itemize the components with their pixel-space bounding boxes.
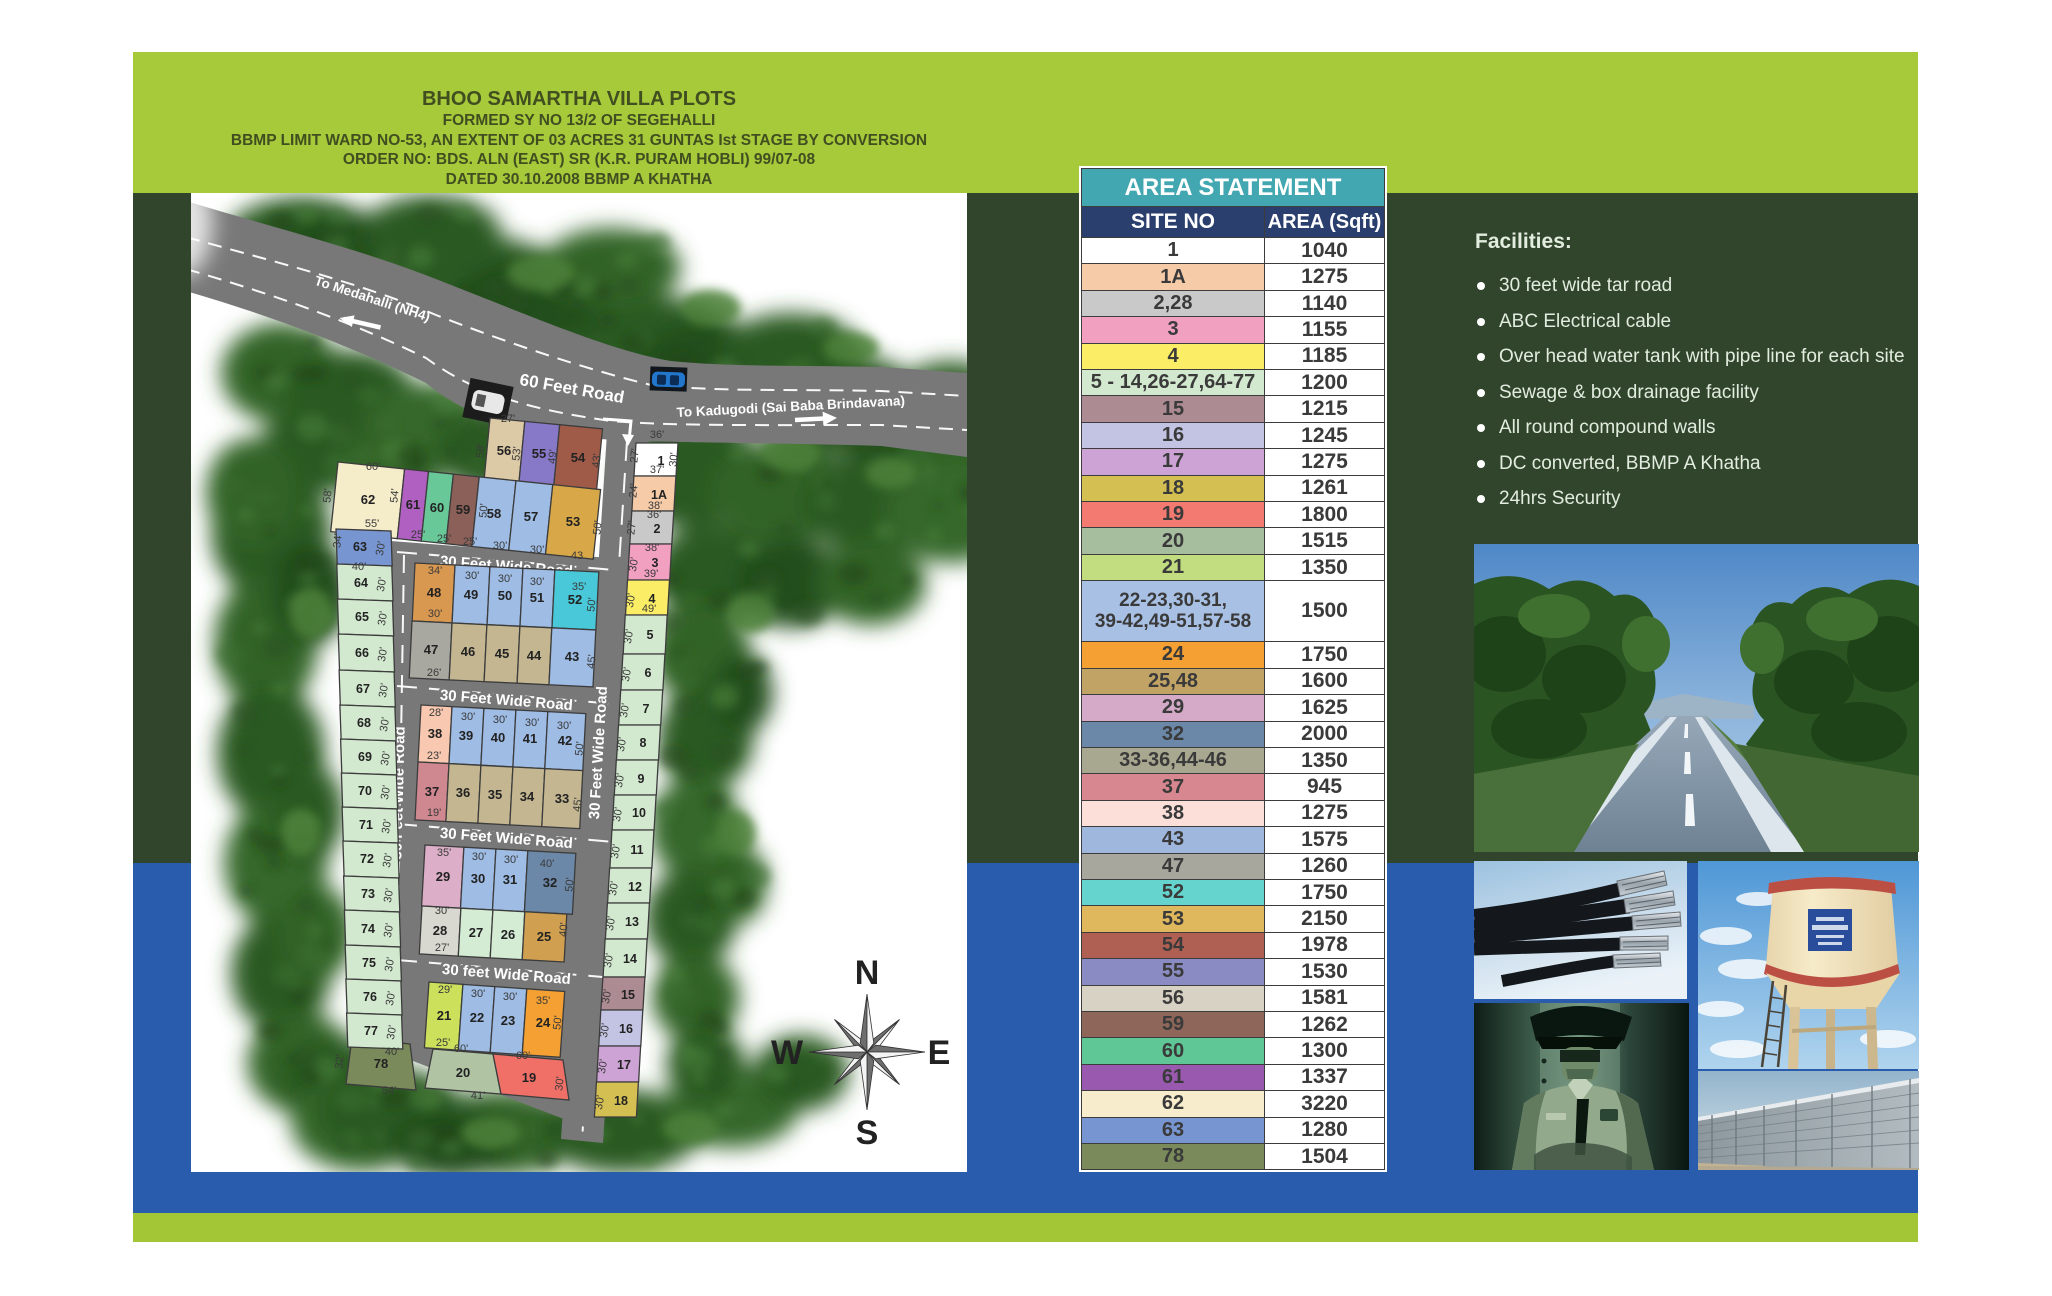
svg-text:30': 30'	[607, 880, 621, 896]
svg-text:60': 60'	[454, 1043, 468, 1055]
svg-text:8: 8	[640, 736, 647, 750]
svg-text:43: 43	[565, 649, 579, 664]
svg-text:50': 50'	[585, 597, 598, 613]
svg-text:59: 59	[456, 502, 470, 517]
svg-text:47: 47	[424, 642, 438, 657]
svg-text:30': 30'	[498, 573, 512, 585]
svg-text:35: 35	[488, 787, 502, 802]
svg-text:56: 56	[497, 443, 511, 458]
svg-text:30': 30'	[602, 952, 616, 968]
svg-text:25: 25	[537, 929, 551, 944]
svg-text:37': 37'	[650, 464, 664, 476]
svg-text:24: 24	[536, 1015, 551, 1030]
svg-text:40: 40	[491, 730, 505, 745]
svg-text:69: 69	[358, 750, 372, 764]
svg-text:30': 30'	[461, 711, 475, 723]
svg-text:30': 30'	[378, 716, 392, 732]
svg-text:25': 25'	[411, 529, 425, 541]
svg-text:41': 41'	[471, 1090, 485, 1102]
svg-text:30': 30'	[503, 991, 517, 1003]
svg-text:30': 30'	[553, 1076, 566, 1092]
svg-text:31: 31	[503, 872, 517, 887]
svg-text:30': 30'	[380, 818, 394, 834]
svg-text:70: 70	[358, 784, 372, 798]
svg-text:30': 30'	[374, 540, 388, 556]
svg-text:49': 49'	[642, 603, 656, 615]
svg-text:35': 35'	[572, 581, 586, 593]
svg-text:30': 30'	[382, 922, 396, 938]
svg-text:30': 30'	[611, 806, 625, 822]
svg-text:30': 30'	[472, 851, 486, 863]
svg-text:27': 27'	[625, 520, 638, 536]
svg-text:52: 52	[568, 592, 582, 607]
svg-text:30': 30'	[471, 988, 485, 1000]
svg-text:30': 30'	[493, 714, 507, 726]
svg-text:24': 24'	[627, 483, 640, 499]
svg-text:32': 32'	[333, 1054, 346, 1070]
svg-text:66: 66	[355, 646, 369, 660]
svg-text:27': 27'	[628, 448, 641, 464]
svg-text:30': 30'	[598, 1022, 612, 1038]
svg-text:34': 34'	[331, 533, 344, 549]
svg-text:17: 17	[617, 1058, 631, 1072]
svg-text:S: S	[856, 1114, 879, 1152]
svg-text:35': 35'	[437, 847, 451, 859]
svg-text:36': 36'	[647, 509, 661, 521]
svg-text:30': 30'	[379, 784, 393, 800]
svg-text:54': 54'	[388, 488, 401, 504]
svg-text:30': 30'	[667, 452, 680, 468]
svg-text:41: 41	[523, 731, 537, 746]
svg-text:65: 65	[355, 610, 369, 624]
svg-text:33: 33	[555, 791, 569, 806]
svg-text:7: 7	[643, 702, 650, 716]
svg-text:28: 28	[433, 923, 447, 938]
svg-text:53': 53'	[510, 446, 523, 462]
svg-text:30': 30'	[620, 666, 634, 682]
svg-text:62: 62	[361, 492, 375, 507]
svg-text:76: 76	[363, 990, 377, 1004]
svg-text:54: 54	[571, 450, 586, 465]
svg-text:30': 30'	[615, 736, 629, 752]
svg-text:10: 10	[632, 806, 646, 820]
svg-text:39': 39'	[644, 568, 658, 580]
svg-text:36': 36'	[650, 429, 664, 441]
svg-text:77: 77	[364, 1024, 378, 1038]
svg-text:30': 30'	[379, 750, 393, 766]
svg-text:46: 46	[461, 644, 475, 659]
svg-text:44: 44	[527, 648, 542, 663]
svg-text:30': 30'	[377, 682, 391, 698]
svg-text:25': 25'	[436, 1037, 450, 1049]
svg-text:16: 16	[619, 1022, 633, 1036]
svg-text:30': 30'	[428, 608, 442, 620]
svg-text:67: 67	[356, 682, 370, 696]
svg-text:32: 32	[543, 875, 557, 890]
svg-text:11: 11	[630, 843, 643, 857]
svg-text:30': 30'	[376, 646, 390, 662]
svg-text:61: 61	[406, 497, 420, 512]
svg-text:43: 43	[571, 550, 583, 562]
svg-text:30': 30'	[557, 720, 571, 732]
svg-text:25': 25'	[437, 533, 451, 545]
svg-text:30': 30'	[375, 576, 389, 592]
svg-text:57: 57	[524, 509, 538, 524]
svg-text:68: 68	[357, 716, 371, 730]
svg-text:30': 30'	[618, 702, 632, 718]
svg-text:40': 40'	[385, 1046, 399, 1058]
svg-text:42: 42	[558, 733, 572, 748]
svg-text:50': 50'	[591, 520, 604, 536]
svg-text:23: 23	[501, 1013, 515, 1028]
svg-text:78: 78	[374, 1056, 388, 1071]
svg-text:30': 30'	[593, 1094, 607, 1110]
svg-text:19': 19'	[427, 807, 441, 819]
svg-text:45': 45'	[585, 654, 598, 670]
svg-text:26: 26	[501, 927, 515, 942]
svg-text:26': 26'	[427, 667, 441, 679]
svg-text:14: 14	[623, 952, 637, 966]
svg-text:28': 28'	[429, 707, 443, 719]
svg-text:50': 50'	[551, 1015, 564, 1031]
svg-text:72: 72	[360, 852, 374, 866]
svg-text:40': 40'	[557, 922, 570, 938]
svg-text:74: 74	[361, 922, 375, 936]
svg-text:30': 30'	[596, 1058, 610, 1074]
svg-text:36: 36	[456, 785, 470, 800]
svg-text:30': 30'	[385, 1024, 399, 1040]
svg-text:43': 43'	[590, 453, 603, 469]
svg-text:30': 30'	[381, 852, 395, 868]
svg-text:50': 50'	[563, 877, 576, 893]
svg-text:18: 18	[614, 1094, 628, 1108]
svg-text:20: 20	[456, 1065, 470, 1080]
svg-text:19: 19	[522, 1070, 536, 1085]
svg-text:30': 30'	[530, 544, 544, 556]
svg-text:29: 29	[436, 869, 450, 884]
svg-text:49: 49	[464, 587, 478, 602]
svg-text:30': 30'	[600, 988, 614, 1004]
svg-text:W: W	[771, 1034, 804, 1072]
svg-text:30': 30'	[493, 540, 507, 552]
svg-text:55': 55'	[365, 518, 379, 530]
svg-text:5: 5	[647, 628, 654, 642]
svg-text:48: 48	[427, 585, 441, 600]
svg-text:30': 30'	[384, 990, 398, 1006]
svg-text:13: 13	[625, 915, 639, 929]
svg-text:30': 30'	[435, 905, 449, 917]
svg-text:55: 55	[532, 446, 546, 461]
svg-text:30': 30'	[613, 772, 627, 788]
svg-text:30': 30'	[624, 592, 638, 608]
svg-text:60: 60	[430, 500, 444, 515]
svg-text:27: 27	[469, 925, 483, 940]
svg-text:45: 45	[495, 646, 509, 661]
svg-text:30': 30'	[504, 854, 518, 866]
svg-text:2: 2	[654, 522, 661, 536]
svg-text:29': 29'	[438, 984, 452, 996]
svg-text:45': 45'	[571, 797, 584, 813]
svg-text:63: 63	[353, 540, 367, 554]
svg-text:30': 30'	[609, 843, 623, 859]
svg-text:30: 30	[471, 871, 485, 886]
svg-text:50': 50'	[573, 741, 586, 757]
svg-text:27': 27'	[501, 413, 515, 425]
svg-text:6: 6	[645, 666, 652, 680]
svg-text:38: 38	[428, 726, 442, 741]
svg-text:23': 23'	[427, 750, 441, 762]
svg-text:25': 25'	[463, 536, 477, 548]
svg-text:22: 22	[470, 1010, 484, 1025]
svg-text:E: E	[928, 1034, 951, 1072]
svg-text:35': 35'	[536, 995, 550, 1007]
svg-text:30': 30'	[382, 887, 396, 903]
svg-text:34: 34	[520, 789, 535, 804]
svg-text:12: 12	[628, 880, 642, 894]
svg-text:38': 38'	[645, 542, 659, 554]
svg-text:51: 51	[530, 590, 544, 605]
svg-text:71: 71	[359, 818, 373, 832]
svg-text:30': 30'	[376, 610, 390, 626]
svg-text:58': 58'	[321, 488, 334, 504]
svg-text:37: 37	[425, 784, 439, 799]
svg-text:49': 49'	[546, 449, 559, 465]
svg-text:75: 75	[362, 956, 376, 970]
svg-text:73: 73	[361, 887, 375, 901]
svg-text:50': 50'	[477, 503, 490, 519]
svg-text:30': 30'	[622, 628, 636, 644]
svg-text:60': 60'	[366, 461, 380, 473]
svg-text:40': 40'	[540, 858, 554, 870]
svg-text:27': 27'	[435, 942, 449, 954]
svg-text:58': 58'	[474, 443, 487, 459]
svg-text:53: 53	[566, 514, 580, 529]
svg-text:30': 30'	[604, 915, 618, 931]
svg-text:30': 30'	[465, 570, 479, 582]
svg-text:9: 9	[638, 772, 645, 786]
svg-text:30': 30'	[530, 576, 544, 588]
svg-text:40': 40'	[352, 561, 366, 573]
svg-text:30': 30'	[383, 956, 397, 972]
svg-text:54': 54'	[382, 1085, 396, 1097]
svg-text:39: 39	[459, 728, 473, 743]
svg-text:30': 30'	[627, 556, 641, 572]
svg-text:60': 60'	[516, 1050, 530, 1062]
svg-text:N: N	[855, 954, 880, 992]
svg-text:15: 15	[621, 988, 635, 1002]
svg-text:50: 50	[498, 588, 512, 603]
svg-text:21: 21	[437, 1008, 451, 1023]
svg-text:30': 30'	[525, 717, 539, 729]
svg-text:64: 64	[354, 576, 368, 590]
svg-text:34': 34'	[428, 565, 442, 577]
